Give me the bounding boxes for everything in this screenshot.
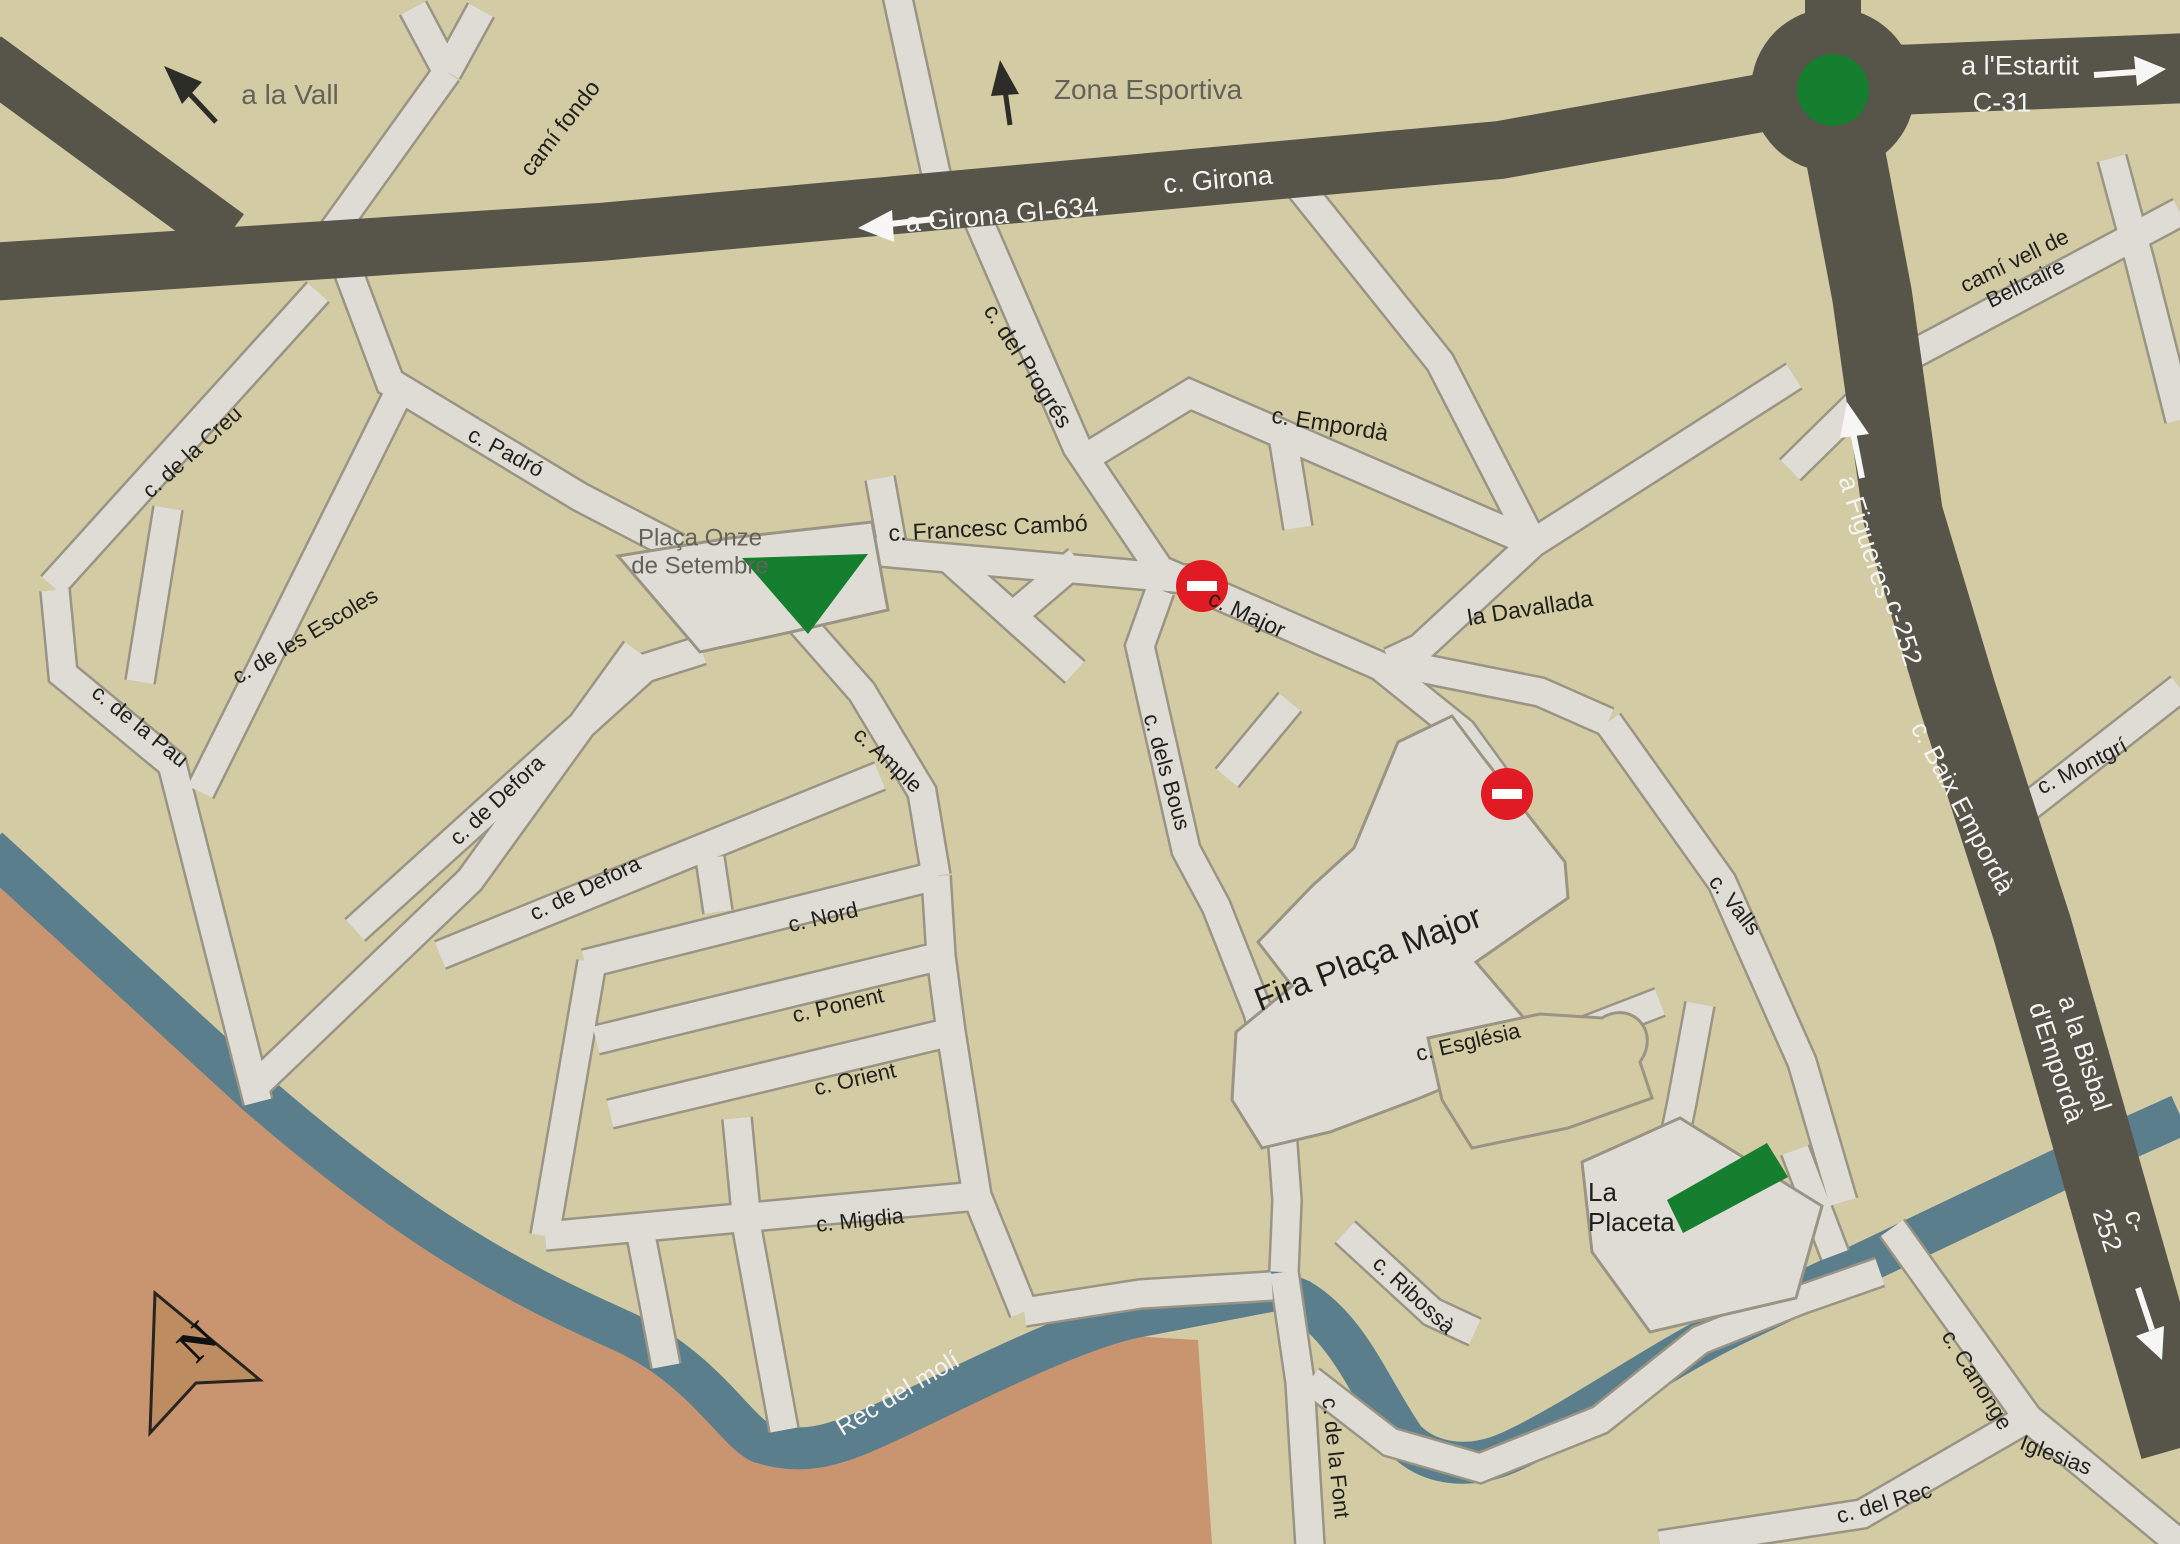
c-252-upper-label: c-252 [1878,596,1928,670]
placa-onze-de-setembre-label: Plaça Onze de Setembre [631,524,768,579]
c-montgri-label: c. Montgrí [2033,733,2132,800]
a-l-estartit-label: a l'Estartit [1961,50,2079,81]
c-ponent-label: c. Ponent [790,982,886,1028]
c-de-defora-1-label: c. de Defora [445,750,550,850]
c-del-rec-label: c. del Rec [1833,1477,1934,1528]
c-de-defora-2-label: c. de Defora [526,850,645,925]
la-davallada-label: la Davallada [1465,585,1594,631]
c-dels-bous-label: c. dels Bous [1138,711,1195,833]
town-street-map: N a la Vallcamí fondoZona Esportivaa Gir… [0,0,2180,1544]
c-252-lower-label: c-252 [2083,1189,2158,1264]
iglesias-label: Iglesias [2017,1430,2096,1480]
c-girona-label: c. Girona [1162,160,1274,200]
c-de-la-creu-label: c. de la Creu [137,401,247,503]
a-la-bisbal-d-emporda-label: a la Bisbal d'Empordà [2022,989,2117,1126]
c-de-la-pau-label: c. de la Pau [87,680,193,773]
cami-fondo-label: camí fondo [515,75,606,181]
zona-esportiva-label: Zona Esportiva [1054,74,1242,106]
c-de-les-escoles-label: c. de les Escoles [228,583,383,690]
c-ribossa-label: c. Ribossà [1368,1251,1460,1340]
fira-placa-major-label: Fira Plaça Major [1249,897,1487,1019]
cami-vell-de-bellcaire-label: camí vell de Bellcaire [1937,214,2103,330]
c-de-la-font-label: c. de la Font [1317,1396,1355,1519]
c-emporda-label: c. Empordà [1270,402,1390,447]
c-padro-label: c. Padró [464,422,548,483]
a-girona-gi-634-label: a Girona GI-634 [904,191,1100,239]
label-layer: a la Vallcamí fondoZona Esportivaa Giron… [0,0,2180,1544]
c-nord-label: c. Nord [786,897,861,938]
c-del-progres-label: c. del Progrés [978,299,1077,432]
c-baix-emporda-label: c. Baix Empordà [1904,717,2020,899]
c-esglesia-label: c. Església [1413,1018,1522,1067]
rec-del-moli-label: Rec del molí [831,1346,965,1442]
c-migdia-label: c. Migdia [815,1203,905,1237]
c-valls-label: c. Valls [1704,870,1767,940]
c-major-label: c. Major [1204,585,1289,644]
c-31-label: C-31 [1973,87,2032,118]
a-figueres-label: a Figueres [1832,472,1901,603]
a-la-vall-label: a la Vall [241,79,339,111]
c-francesc-cambo-label: c. Francesc Cambó [888,510,1089,547]
la-placeta-label: La Placeta [1588,1178,1675,1238]
c-ample-label: c. Ample [849,722,928,798]
c-canonge-label: c. Canonge [1936,1326,2017,1435]
c-orient-label: c. Orient [812,1057,899,1100]
